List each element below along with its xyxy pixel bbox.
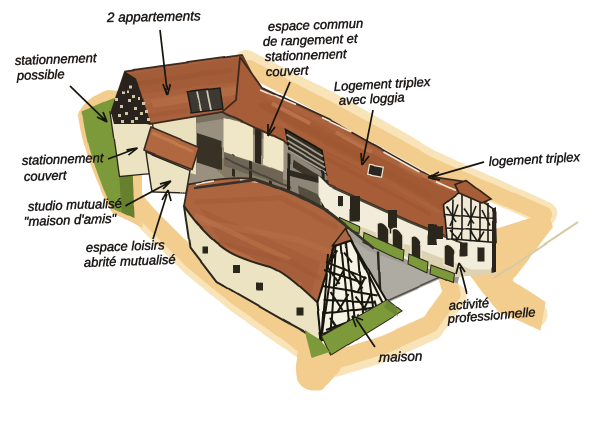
svg-text:abrité mutualisé: abrité mutualisé xyxy=(84,252,176,270)
svg-text:maison: maison xyxy=(379,348,423,365)
svg-text:couvert: couvert xyxy=(24,167,69,184)
svg-text:possible: possible xyxy=(16,66,65,83)
svg-text:stationnement: stationnement xyxy=(22,150,106,168)
svg-text:2 appartements: 2 appartements xyxy=(106,8,201,25)
svg-text:couvert: couvert xyxy=(266,62,311,79)
svg-text:stationnement: stationnement xyxy=(265,46,349,64)
svg-text:stationnement: stationnement xyxy=(15,50,99,68)
